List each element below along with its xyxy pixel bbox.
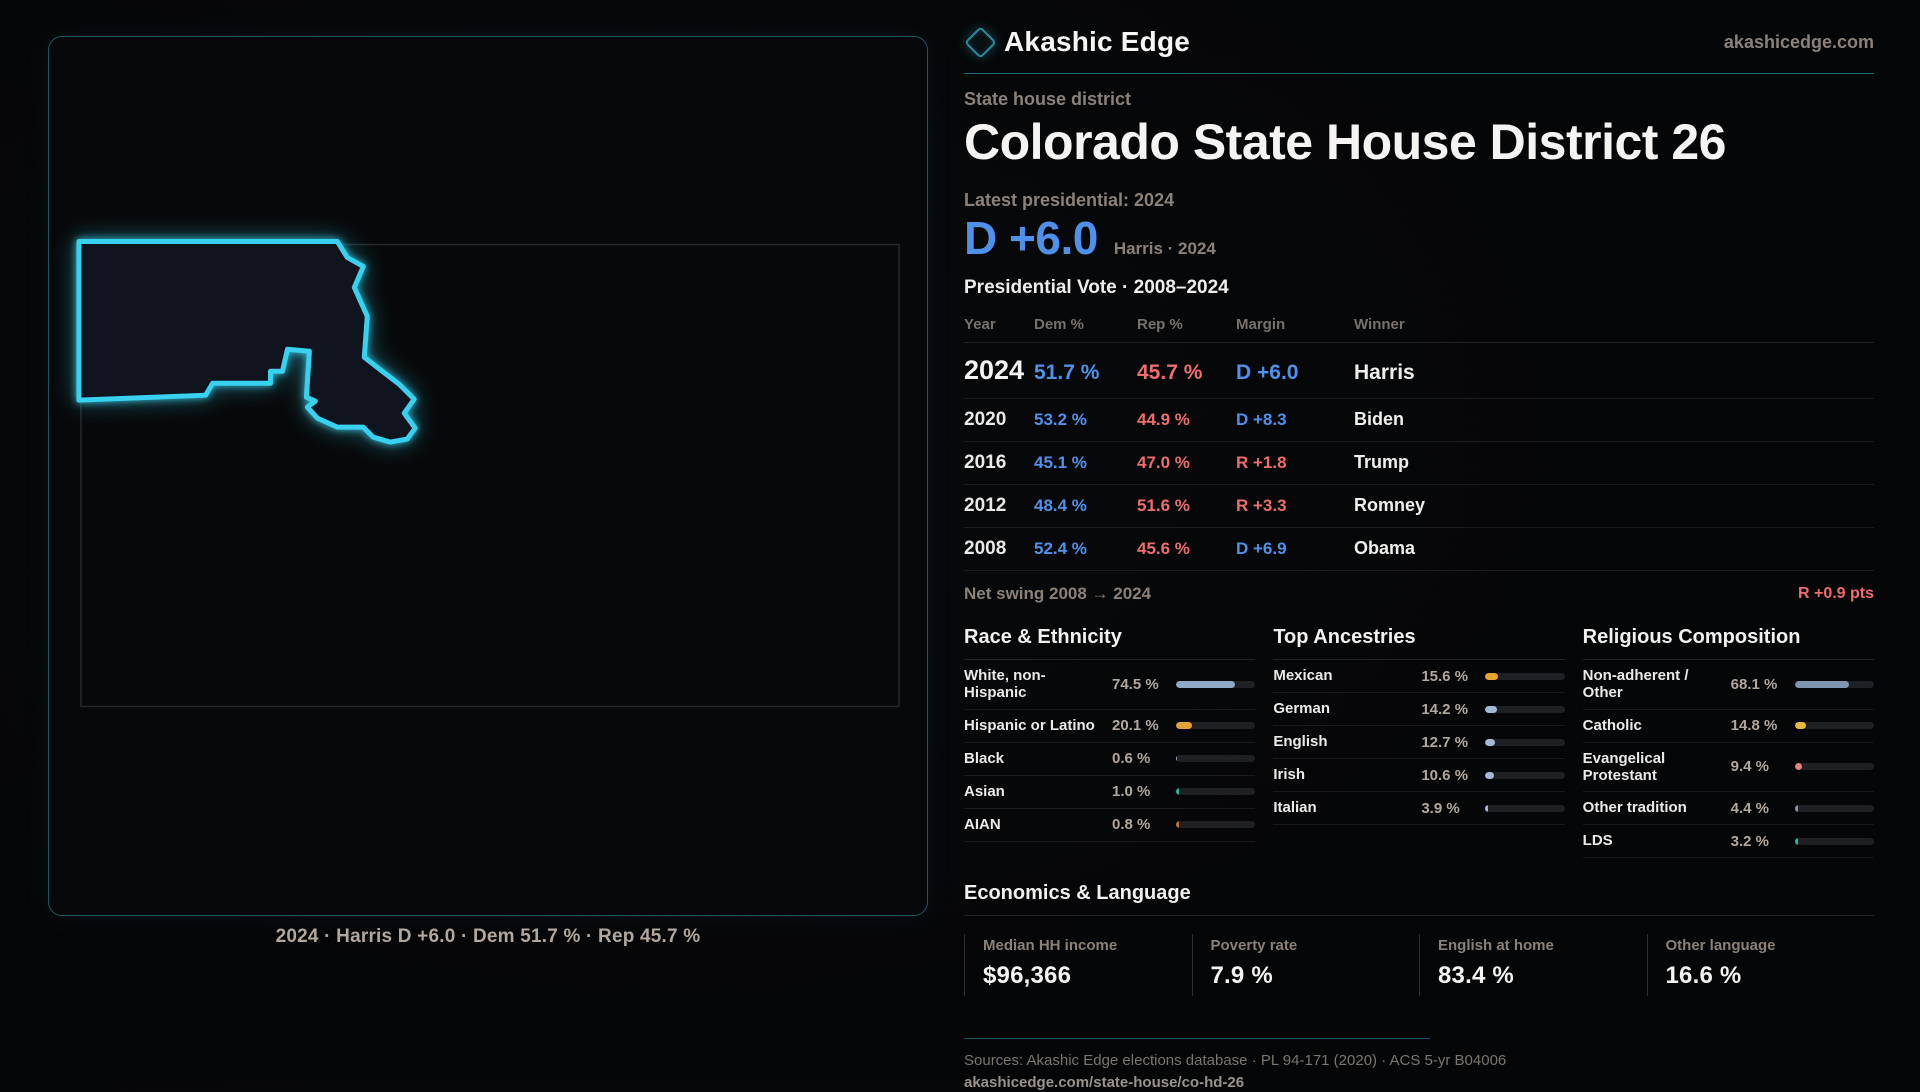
footer-divider	[964, 1038, 1430, 1039]
demographic-value: 1.0 %	[1112, 783, 1176, 800]
demographic-value: 3.9 %	[1421, 800, 1485, 817]
religious-composition-section: Religious Composition Non-adherent / Oth…	[1583, 626, 1874, 858]
demographic-value: 0.6 %	[1112, 750, 1176, 767]
year-cell: 2020	[964, 409, 1034, 431]
demographic-row: Mexican 15.6 %	[1273, 660, 1564, 693]
stat-value: 83.4 %	[1438, 962, 1647, 990]
col-header-rep: Rep %	[1137, 316, 1236, 333]
race-ethnicity-rows: White, non-Hispanic 74.5 % Hispanic or L…	[964, 660, 1255, 842]
bar-fill	[1176, 788, 1179, 795]
bar-fill	[1485, 772, 1493, 779]
margin-cell: D +6.0	[1236, 361, 1354, 385]
demographic-value: 14.8 %	[1731, 717, 1795, 734]
brand-diamond-icon	[964, 26, 997, 59]
vote-table-header: Year Dem % Rep % Margin Winner	[964, 307, 1874, 343]
demographic-value: 0.8 %	[1112, 816, 1176, 833]
stat-label: English at home	[1438, 937, 1647, 954]
demographic-label: Asian	[964, 783, 1112, 800]
net-swing-value: R +0.9 pts	[1798, 585, 1874, 603]
bar-fill	[1795, 805, 1798, 812]
demographic-value: 10.6 %	[1421, 767, 1485, 784]
latest-presidential-label: Latest presidential: 2024	[964, 190, 1874, 211]
stat-value: 16.6 %	[1666, 962, 1875, 990]
top-ancestries-section: Top Ancestries Mexican 15.6 % German 14.…	[1273, 626, 1564, 858]
bar-track	[1485, 706, 1564, 713]
col-header-winner: Winner	[1354, 316, 1874, 333]
winner-cell: Harris	[1354, 361, 1874, 385]
demographic-row: English 12.7 %	[1273, 726, 1564, 759]
col-header-year: Year	[964, 316, 1034, 333]
rep-cell: 45.7 %	[1137, 361, 1236, 385]
rep-cell: 51.6 %	[1137, 496, 1236, 516]
demographic-value: 12.7 %	[1421, 734, 1485, 751]
margin-cell: R +1.8	[1236, 453, 1354, 473]
stat-tile: English at home 83.4 %	[1419, 934, 1647, 996]
stat-tile: Other language 16.6 %	[1647, 934, 1875, 996]
rep-cell: 47.0 %	[1137, 453, 1236, 473]
race-ethnicity-section: Race & Ethnicity White, non-Hispanic 74.…	[964, 626, 1255, 858]
top-ancestries-rows: Mexican 15.6 % German 14.2 % English 12.…	[1273, 660, 1564, 825]
vote-table-title: Presidential Vote · 2008–2024	[964, 277, 1874, 299]
economics-tiles: Median HH income $96,366 Poverty rate 7.…	[964, 934, 1874, 996]
demographic-label: AIAN	[964, 816, 1112, 833]
vote-table-body: 2024 51.7 % 45.7 % D +6.0 Harris 2020 53…	[964, 343, 1874, 571]
winner-cell: Romney	[1354, 495, 1874, 516]
demographic-label: Evangelical Protestant	[1583, 750, 1731, 785]
vote-table-row: 2016 45.1 % 47.0 % R +1.8 Trump	[964, 442, 1874, 485]
detail-panel: Akashic Edge akashicedge.com State house…	[964, 26, 1874, 1092]
bar-track	[1176, 755, 1255, 762]
bar-fill	[1176, 755, 1177, 762]
dem-cell: 52.4 %	[1034, 539, 1137, 559]
permalink[interactable]: akashicedge.com/state-house/co-hd-26	[964, 1074, 1244, 1091]
demographic-label: White, non-Hispanic	[964, 667, 1112, 702]
religious-composition-rows: Non-adherent / Other 68.1 % Catholic 14.…	[1583, 660, 1874, 858]
brand-site-link[interactable]: akashicedge.com	[1724, 32, 1874, 53]
demographic-row: AIAN 0.8 %	[964, 809, 1255, 842]
year-cell: 2016	[964, 452, 1034, 474]
footer: Sources: Akashic Edge elections database…	[964, 1038, 1874, 1092]
demographic-row: Italian 3.9 %	[1273, 792, 1564, 825]
bar-track	[1795, 838, 1874, 845]
stat-label: Other language	[1666, 937, 1875, 954]
demographic-row: Asian 1.0 %	[964, 776, 1255, 809]
stat-tile: Median HH income $96,366	[964, 934, 1192, 996]
winner-cell: Obama	[1354, 538, 1874, 559]
district-map	[49, 37, 927, 915]
stat-label: Poverty rate	[1211, 937, 1420, 954]
demographic-label: Other tradition	[1583, 799, 1731, 816]
demographic-row: Non-adherent / Other 68.1 %	[1583, 660, 1874, 710]
demographic-row: Irish 10.6 %	[1273, 759, 1564, 792]
map-caption: 2024 · Harris D +6.0 · Dem 51.7 % · Rep …	[48, 926, 928, 948]
demographic-label: German	[1273, 700, 1421, 717]
bar-fill	[1485, 706, 1496, 713]
winner-cell: Biden	[1354, 409, 1874, 430]
col-header-dem: Dem %	[1034, 316, 1137, 333]
demographic-value: 9.4 %	[1731, 758, 1795, 775]
stat-value: 7.9 %	[1211, 962, 1420, 990]
demographic-label: Hispanic or Latino	[964, 717, 1112, 734]
demographic-label: Black	[964, 750, 1112, 767]
margin-cell: D +8.3	[1236, 410, 1354, 430]
rep-cell: 45.6 %	[1137, 539, 1236, 559]
race-ethnicity-title: Race & Ethnicity	[964, 626, 1255, 660]
brand-header: Akashic Edge akashicedge.com	[964, 26, 1874, 74]
vote-table-row: 2020 53.2 % 44.9 % D +8.3 Biden	[964, 399, 1874, 442]
col-header-margin: Margin	[1236, 316, 1354, 333]
dem-cell: 48.4 %	[1034, 496, 1137, 516]
demographic-label: Italian	[1273, 799, 1421, 816]
demographic-value: 4.4 %	[1731, 800, 1795, 817]
stat-label: Median HH income	[983, 937, 1192, 954]
bar-track	[1485, 739, 1564, 746]
dem-cell: 53.2 %	[1034, 410, 1137, 430]
district-map-card	[48, 36, 928, 916]
dem-cell: 51.7 %	[1034, 361, 1137, 385]
demographic-row: German 14.2 %	[1273, 693, 1564, 726]
stat-tile: Poverty rate 7.9 %	[1192, 934, 1420, 996]
demographic-row: LDS 3.2 %	[1583, 825, 1874, 858]
demographic-row: Evangelical Protestant 9.4 %	[1583, 743, 1874, 793]
bar-fill	[1176, 722, 1192, 729]
bar-track	[1485, 673, 1564, 680]
demographic-label: English	[1273, 733, 1421, 750]
bar-fill	[1795, 763, 1802, 770]
demographic-row: Hispanic or Latino 20.1 %	[964, 710, 1255, 743]
religious-composition-title: Religious Composition	[1583, 626, 1874, 660]
district-kicker: State house district	[964, 89, 1874, 110]
latest-margin-sub: Harris · 2024	[1114, 239, 1216, 259]
demographic-value: 68.1 %	[1731, 676, 1795, 693]
bar-track	[1485, 805, 1564, 812]
margin-cell: R +3.3	[1236, 496, 1354, 516]
margin-cell: D +6.9	[1236, 539, 1354, 559]
economics-title: Economics & Language	[964, 882, 1874, 916]
demographic-row: White, non-Hispanic 74.5 %	[964, 660, 1255, 710]
economics-section: Economics & Language Median HH income $9…	[964, 882, 1874, 996]
sources-line: Sources: Akashic Edge elections database…	[964, 1052, 1874, 1069]
bar-track	[1176, 722, 1255, 729]
brand-name: Akashic Edge	[1004, 26, 1190, 58]
demographic-value: 15.6 %	[1421, 668, 1485, 685]
year-cell: 2008	[964, 538, 1034, 560]
rep-cell: 44.9 %	[1137, 410, 1236, 430]
bar-track	[1795, 722, 1874, 729]
bar-fill	[1795, 681, 1849, 688]
bar-track	[1176, 821, 1255, 828]
net-swing-row: Net swing 2008 → 2024 R +0.9 pts	[964, 571, 1874, 604]
stat-value: $96,366	[983, 962, 1192, 990]
bar-fill	[1795, 722, 1807, 729]
bar-fill	[1176, 821, 1179, 828]
latest-margin-row: D +6.0 Harris · 2024	[964, 211, 1874, 265]
bar-fill	[1795, 838, 1798, 845]
bar-track	[1176, 788, 1255, 795]
demographic-value: 14.2 %	[1421, 701, 1485, 718]
bar-fill	[1485, 739, 1495, 746]
presidential-vote-table: Year Dem % Rep % Margin Winner 2024 51.7…	[964, 307, 1874, 604]
demographic-row: Catholic 14.8 %	[1583, 710, 1874, 743]
demographics-grid: Race & Ethnicity White, non-Hispanic 74.…	[964, 626, 1874, 858]
demographic-label: Irish	[1273, 766, 1421, 783]
vote-table-row: 2024 51.7 % 45.7 % D +6.0 Harris	[964, 343, 1874, 399]
top-ancestries-title: Top Ancestries	[1273, 626, 1564, 660]
demographic-value: 20.1 %	[1112, 717, 1176, 734]
demographic-value: 74.5 %	[1112, 676, 1176, 693]
demographic-label: Catholic	[1583, 717, 1731, 734]
dem-cell: 45.1 %	[1034, 453, 1137, 473]
bar-fill	[1485, 673, 1497, 680]
year-cell: 2012	[964, 495, 1034, 517]
winner-cell: Trump	[1354, 452, 1874, 473]
demographic-row: Black 0.6 %	[964, 743, 1255, 776]
bar-track	[1485, 772, 1564, 779]
page-title: Colorado State House District 26	[964, 113, 1874, 171]
district-26-shape	[79, 242, 415, 443]
vote-table-row: 2012 48.4 % 51.6 % R +3.3 Romney	[964, 485, 1874, 528]
demographic-label: Mexican	[1273, 667, 1421, 684]
demographic-value: 3.2 %	[1731, 833, 1795, 850]
bar-track	[1795, 763, 1874, 770]
demographic-row: Other tradition 4.4 %	[1583, 792, 1874, 825]
bar-track	[1795, 681, 1874, 688]
year-cell: 2024	[964, 355, 1034, 386]
latest-margin-value: D +6.0	[964, 211, 1098, 265]
bar-fill	[1176, 681, 1235, 688]
demographic-label: Non-adherent / Other	[1583, 667, 1731, 702]
bar-fill	[1485, 805, 1488, 812]
bar-track	[1795, 805, 1874, 812]
bar-track	[1176, 681, 1255, 688]
net-swing-label: Net swing 2008 → 2024	[964, 584, 1151, 604]
vote-table-row: 2008 52.4 % 45.6 % D +6.9 Obama	[964, 528, 1874, 571]
demographic-label: LDS	[1583, 832, 1731, 849]
